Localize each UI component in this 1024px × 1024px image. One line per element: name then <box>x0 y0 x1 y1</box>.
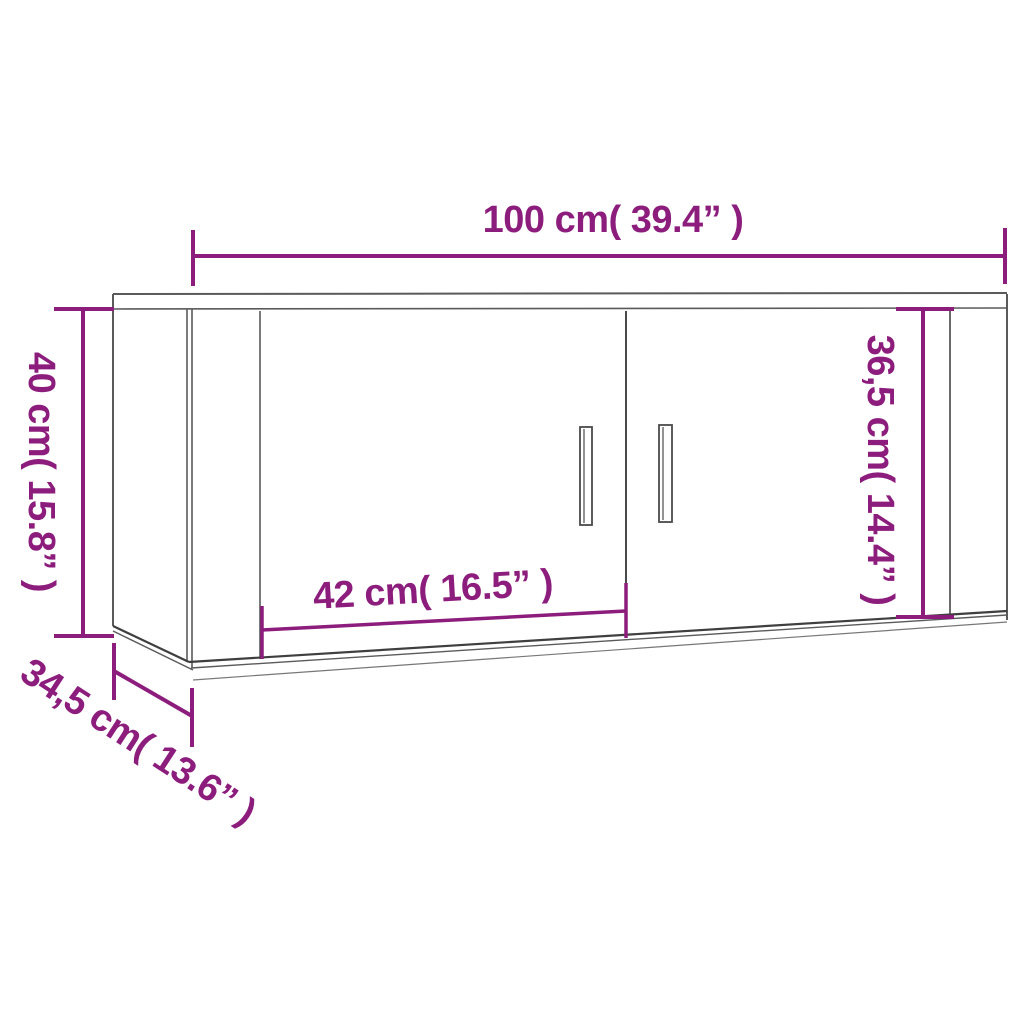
height-label: 40 cm( 15.8” ) <box>22 352 60 592</box>
bottom-front-inner-edge-line <box>191 615 1007 668</box>
width-label: 100 cm( 39.4” ) <box>483 201 744 239</box>
left-door-handle <box>580 427 592 525</box>
bottom-back-edge-line <box>193 622 1007 680</box>
top-back-edge-line <box>113 293 1007 294</box>
door-height-dimension <box>896 309 954 617</box>
top-front-edge-line <box>113 308 1007 309</box>
height-dimension <box>54 309 114 636</box>
dimension-diagram: 100 cm( 39.4” ) 40 cm( 15.8” ) 36,5 cm( … <box>0 0 1024 1024</box>
bottom-front-edge-line <box>189 611 1007 662</box>
door-height-label: 36,5 cm( 14.4” ) <box>861 335 899 606</box>
side-panel-bottom-inner-edge-line <box>113 631 193 670</box>
right-door-handle <box>659 425 672 522</box>
side-panel-bottom-edge-line <box>113 626 189 662</box>
